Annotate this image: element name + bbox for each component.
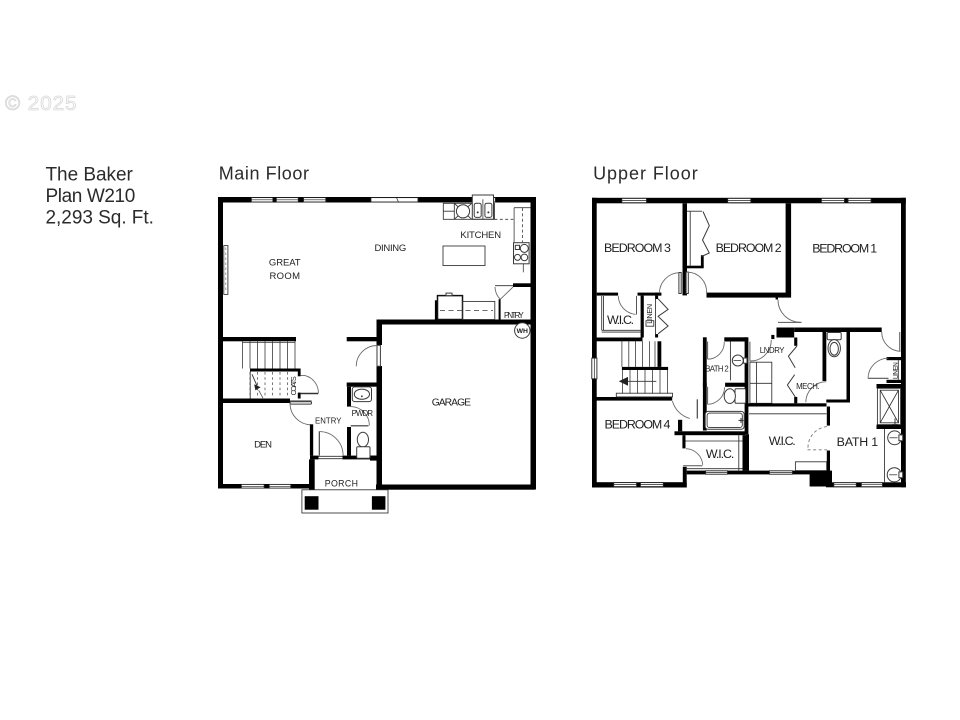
svg-text:LNDRY: LNDRY bbox=[760, 346, 785, 355]
svg-text:2,293 Sq. Ft.: 2,293 Sq. Ft. bbox=[46, 208, 155, 229]
svg-text:GREAT: GREAT bbox=[269, 258, 301, 269]
svg-text:© 2025: © 2025 bbox=[5, 92, 77, 115]
svg-text:The Baker: The Baker bbox=[46, 165, 134, 186]
svg-text:PNTRY: PNTRY bbox=[504, 311, 524, 320]
svg-text:ROOM: ROOM bbox=[270, 271, 301, 282]
svg-text:WH: WH bbox=[517, 328, 528, 335]
svg-text:BEDROOM 4: BEDROOM 4 bbox=[605, 418, 672, 432]
svg-text:BEDROOM 1: BEDROOM 1 bbox=[812, 242, 878, 256]
svg-text:PORCH: PORCH bbox=[325, 479, 359, 489]
svg-text:Main Floor: Main Floor bbox=[219, 164, 310, 184]
svg-text:BATH 1: BATH 1 bbox=[837, 435, 879, 449]
svg-text:BEDROOM 3: BEDROOM 3 bbox=[604, 241, 672, 255]
svg-text:KITCHEN: KITCHEN bbox=[460, 230, 501, 241]
svg-text:BATH 2: BATH 2 bbox=[705, 364, 729, 373]
svg-text:BEDROOM 2: BEDROOM 2 bbox=[716, 241, 783, 255]
svg-text:W.I.C.: W.I.C. bbox=[769, 434, 797, 448]
svg-text:Plan W210: Plan W210 bbox=[46, 186, 136, 207]
svg-text:COATS: COATS bbox=[289, 376, 298, 395]
svg-text:Upper Floor: Upper Floor bbox=[593, 163, 698, 183]
svg-text:LINEN: LINEN bbox=[645, 304, 654, 324]
svg-text:DINING: DINING bbox=[374, 243, 406, 254]
svg-text:LINEN: LINEN bbox=[893, 362, 900, 379]
svg-text:MECH.: MECH. bbox=[796, 382, 820, 391]
svg-text:DEN: DEN bbox=[254, 440, 272, 451]
svg-text:W.I.C.: W.I.C. bbox=[706, 447, 735, 461]
svg-text:PWDR: PWDR bbox=[352, 409, 374, 418]
svg-text:W.I.C.: W.I.C. bbox=[607, 313, 635, 327]
svg-text:GARAGE: GARAGE bbox=[432, 398, 472, 409]
svg-text:ENTRY: ENTRY bbox=[315, 416, 342, 425]
